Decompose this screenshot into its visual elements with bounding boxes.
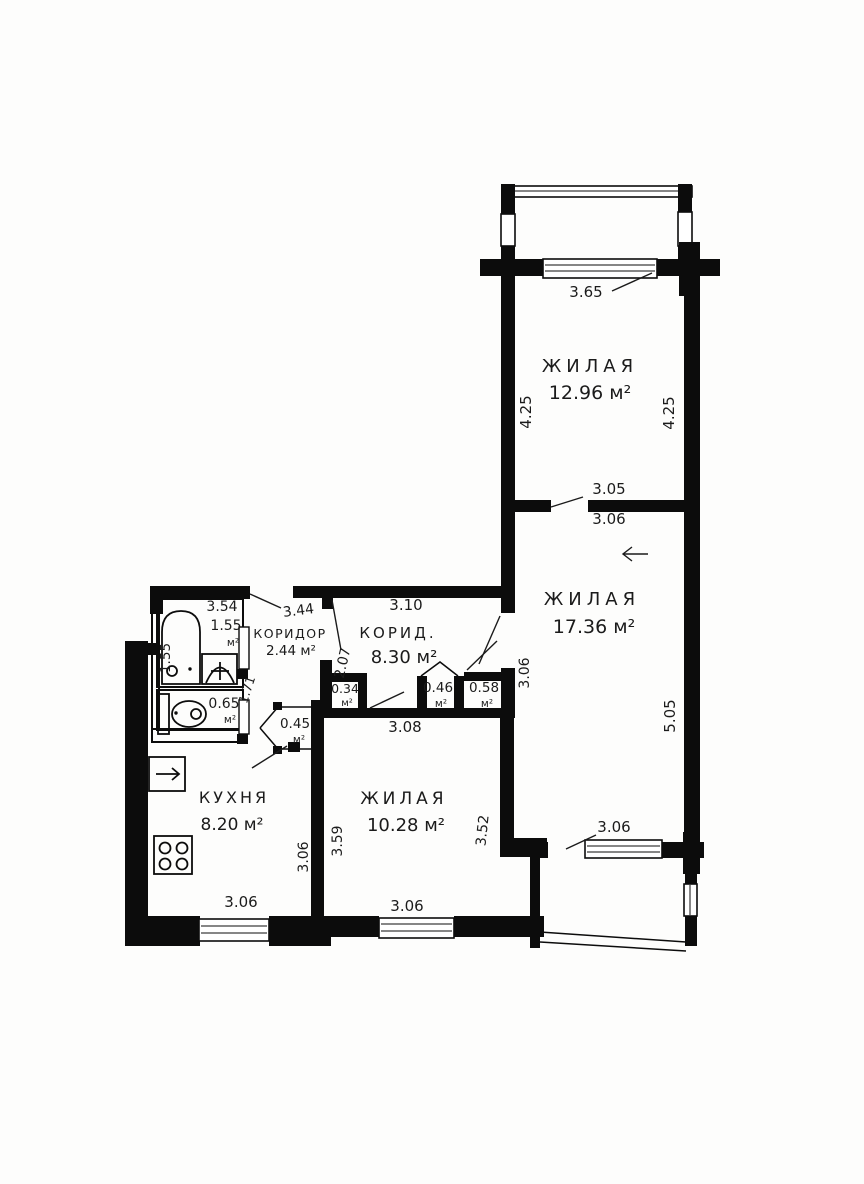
door-swing-kitchen (252, 746, 287, 768)
kitchen-name: КУХНЯ (199, 788, 269, 807)
hall-name: КОРИД. (359, 624, 436, 642)
labels: ЖИЛАЯ 12.96 м² 3.65 4.25 4.25 3.05 3.06 … (158, 283, 679, 915)
dim-3-65: 3.65 (569, 283, 602, 301)
bath-area: 1.55 (210, 618, 241, 634)
dim-3-06-top: 3.06 (592, 510, 625, 528)
window-balcony-right (684, 884, 697, 916)
dim-3-44: 3.44 (282, 601, 315, 621)
door-swing-hall (332, 600, 341, 650)
dim-4-25-right: 4.25 (660, 396, 678, 429)
dim-3-06-balcony: 3.06 (597, 818, 630, 836)
balcony-window-right (678, 212, 692, 246)
floor-plan-drawing: ЖИЛАЯ 12.96 м² 3.65 4.25 4.25 3.05 3.06 … (0, 0, 864, 1184)
closet-045-area: 0.45 (280, 716, 310, 732)
corridor-name: КОРИДОР (253, 626, 326, 641)
sink-icon (202, 654, 237, 684)
dim-3-06-kitchen-right: 3.06 (296, 841, 312, 872)
closet-046-area: 0.46 (423, 680, 453, 696)
kitchen-area: 8.20 м² (201, 815, 264, 835)
closet-046-unit: м² (435, 698, 447, 710)
dim-4-25-left: 4.25 (517, 395, 535, 428)
dim-3-10: 3.10 (389, 596, 422, 614)
bath-unit: м² (227, 637, 239, 649)
window-room3 (379, 918, 454, 938)
floor-plan-page: ЖИЛАЯ 12.96 м² 3.65 4.25 4.25 3.05 3.06 … (0, 0, 864, 1184)
leader-344 (250, 594, 281, 608)
entrance-arrow-icon (623, 547, 648, 561)
fridge-icon (149, 757, 185, 791)
stove-icon (154, 836, 192, 874)
closet-058-unit: м² (481, 698, 493, 710)
closet-058-area: 0.58 (469, 680, 499, 696)
door-swing-room2 (479, 616, 500, 664)
door-swing-closet-058 (467, 641, 497, 670)
dim-1-55-vert: 1.55 (158, 643, 174, 673)
leader-305 (551, 497, 583, 507)
bottom-balcony-rail (540, 932, 686, 951)
dim-5-05: 5.05 (661, 699, 679, 732)
dim-3-54: 3.54 (206, 599, 237, 615)
closet-045-unit: м² (293, 734, 305, 746)
room2-name: ЖИЛАЯ (544, 589, 640, 610)
window-kitchen (199, 919, 269, 941)
hall-area: 8.30 м² (371, 647, 438, 668)
dim-3-52: 3.52 (473, 814, 492, 847)
dim-3-06-kitchen-bottom: 3.06 (224, 893, 257, 911)
dim-3-06-room3: 3.06 (390, 897, 423, 915)
dim-3-59: 3.59 (330, 825, 346, 856)
kitchen-fixtures (149, 757, 192, 874)
wc-unit: м² (224, 714, 236, 726)
window-room1-north (543, 259, 657, 278)
closet-034-area: 0.34 (331, 681, 359, 696)
room1-name: ЖИЛАЯ (542, 356, 638, 377)
dim-3-08: 3.08 (388, 718, 421, 736)
dim-3-06-room2-left: 3.06 (517, 657, 533, 688)
room3-name: ЖИЛАЯ (360, 789, 447, 809)
balcony-window-left (501, 214, 515, 246)
room2-area: 17.36 м² (553, 616, 635, 638)
door-swing-closet-034 (370, 692, 404, 708)
room3-area: 10.28 м² (367, 815, 445, 836)
window-room2-balcony (585, 840, 662, 858)
closet-034-unit: м² (341, 698, 353, 709)
room1-area: 12.96 м² (549, 382, 631, 404)
corridor-area: 2.44 м² (266, 643, 316, 659)
dim-3-05: 3.05 (592, 480, 625, 498)
wc-area: 0.65 (208, 696, 239, 712)
